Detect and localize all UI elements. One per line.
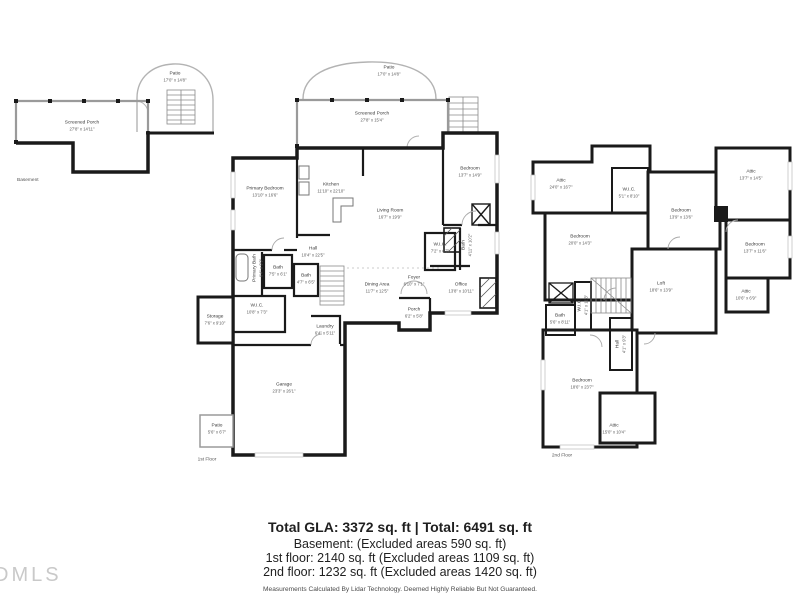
chimney <box>714 206 728 222</box>
basement-floorplan <box>14 64 214 172</box>
basement-stairs-icon <box>167 90 195 124</box>
first-floor-exterior-stairs-icon <box>449 97 478 134</box>
floor-label-basement: Basement <box>17 178 39 183</box>
second-floor-walls <box>533 146 790 447</box>
floor-label-1st: 1st Floor <box>198 458 217 463</box>
mls-watermark: DMLS <box>0 564 62 587</box>
first-floor-area-line: 1st floor: 2140 sq. ft (Excluded areas 1… <box>0 551 800 565</box>
porch-posts <box>14 99 150 144</box>
porch-posts <box>295 98 450 148</box>
area-summary: Total GLA: 3372 sq. ft | Total: 6491 sq.… <box>0 519 800 593</box>
total-gla-line: Total GLA: 3372 sq. ft | Total: 6491 sq.… <box>0 519 800 536</box>
floor-label-2nd: 2nd Floor <box>552 454 572 459</box>
measurement-disclaimer: Measurements Calculated By Lidar Technol… <box>0 586 800 593</box>
basement-area-line: Basement: (Excluded areas 590 sq. ft) <box>0 537 800 551</box>
second-floor-plan <box>531 146 792 449</box>
second-floor-area-line: 2nd floor: 1232 sq. ft (Excluded areas 1… <box>0 565 800 579</box>
first-floor-plan <box>198 62 499 457</box>
floorplan-drawing <box>0 0 800 600</box>
